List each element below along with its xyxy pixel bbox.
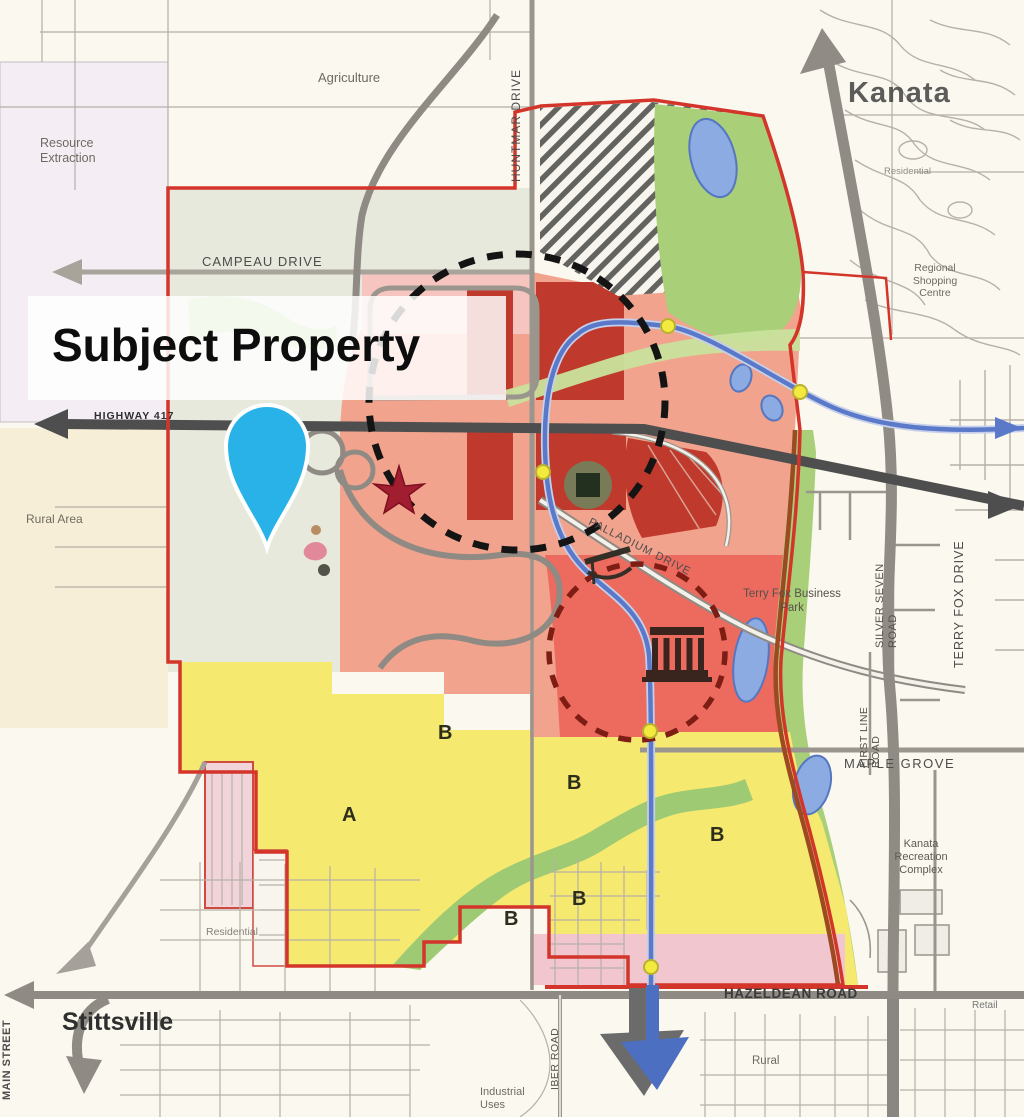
subject-property-band: Subject Property — [28, 296, 506, 400]
zone-letter-b: B — [567, 772, 581, 795]
huntmar-drive-label: HUNTMAR DRIVE — [509, 52, 523, 182]
zone-letter-a: A — [342, 804, 356, 827]
stittsville-label: Stittsville — [62, 1007, 173, 1037]
rural-label: Rural — [752, 1055, 779, 1069]
iber-road-label: IBER ROAD — [549, 1010, 562, 1090]
agriculture-label: Agriculture — [318, 70, 380, 86]
residential-kanata-label: Residential — [884, 166, 931, 177]
resource-extraction-label: Resource Extraction — [40, 136, 124, 166]
highway-417-label: HIGHWAY 417 — [94, 410, 174, 423]
zone-letter-b: B — [710, 824, 724, 847]
zone-letter-b: B — [504, 908, 518, 931]
first-line-road-label: FIRST LINE ROAD — [858, 700, 882, 768]
hazeldean-road-label: HAZELDEAN ROAD — [724, 986, 858, 1002]
terry-fox-drive-label: TERRY FOX DRIVE — [952, 518, 967, 668]
dark-red-block — [467, 425, 513, 520]
silver-seven-road-label: SILVER SEVEN ROAD — [874, 556, 899, 648]
campeau-drive-label: CAMPEAU DRIVE — [202, 254, 323, 270]
regional-shopping-centre-label: Regional Shopping Centre — [896, 262, 974, 300]
residential-stittsville-label: Residential — [206, 926, 258, 939]
terry-fox-business-park-label: Terry Fox Business Park — [742, 588, 842, 616]
arena-icon — [564, 461, 612, 509]
kanata-label: Kanata — [848, 76, 951, 111]
map-root: Subject Property Kanata Stittsville Agri… — [0, 0, 1024, 1117]
industrial-uses-label: Industrial Uses — [480, 1086, 550, 1112]
main-street-label: MAIN STREET — [1, 990, 14, 1100]
kanata-recreation-complex-label: Kanata Recreation Complex — [878, 838, 964, 878]
zone-letter-b: B — [572, 888, 586, 911]
zone-letter-b: B — [438, 722, 452, 745]
white-cell — [253, 850, 287, 966]
rural-area-label: Rural Area — [26, 512, 83, 526]
subject-property-title: Subject Property — [52, 318, 420, 372]
pink-zone-south — [530, 934, 845, 985]
retail-label: Retail — [972, 1000, 998, 1012]
